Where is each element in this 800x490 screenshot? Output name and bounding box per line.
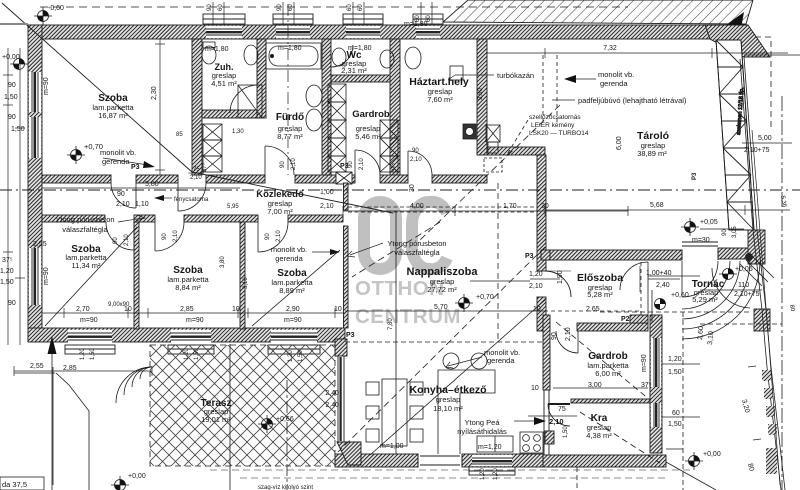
svg-text:16,87 m²: 16,87 m² <box>98 111 128 120</box>
svg-text:1,50: 1,50 <box>668 421 682 428</box>
svg-text:10: 10 <box>124 306 132 313</box>
svg-text:2,10: 2,10 <box>276 230 282 242</box>
svg-text:m=90: m=90 <box>186 317 204 324</box>
svg-text:2,40: 2,40 <box>325 390 339 397</box>
svg-text:+0,05: +0,05 <box>700 219 718 226</box>
svg-text:2,31 m²: 2,31 m² <box>341 66 367 75</box>
svg-text:m=90: m=90 <box>43 77 50 95</box>
svg-text:m=30: m=30 <box>692 237 710 244</box>
svg-text:6,00: 6,00 <box>616 136 623 150</box>
svg-text:+0,00: +0,00 <box>128 473 146 480</box>
svg-text:Fürdő: Fürdő <box>276 112 304 123</box>
svg-text:1,90: 1,90 <box>557 270 564 284</box>
svg-text:18,10 m²: 18,10 m² <box>433 404 463 413</box>
svg-text:2,10: 2,10 <box>124 234 130 246</box>
svg-text:+0,05: +0,05 <box>735 266 753 273</box>
svg-text:válaszfaltégla: válaszfaltégla <box>394 248 440 257</box>
svg-text:2,40: 2,40 <box>656 282 670 289</box>
svg-text:1,20: 1,20 <box>529 271 543 278</box>
svg-text:37⁵: 37⁵ <box>201 162 208 172</box>
svg-text:60: 60 <box>358 4 364 11</box>
svg-text:1,50: 1,50 <box>298 350 304 362</box>
svg-text:110: 110 <box>738 282 749 289</box>
svg-text:1,00: 1,00 <box>320 189 334 196</box>
svg-text:1,20: 1,20 <box>288 350 294 362</box>
svg-text:2,60: 2,60 <box>697 326 705 340</box>
svg-text:11,34 m²: 11,34 m² <box>71 261 101 270</box>
svg-text:5,70: 5,70 <box>434 304 448 311</box>
svg-text:1,20: 1,20 <box>80 348 86 360</box>
svg-text:90: 90 <box>113 237 119 244</box>
svg-text:5,00: 5,00 <box>758 135 772 142</box>
svg-text:+0,60: +0,60 <box>671 292 689 299</box>
svg-text:60: 60 <box>218 4 224 11</box>
svg-text:90: 90 <box>280 161 286 168</box>
svg-text:fénycsatorna: fénycsatorna <box>174 197 209 203</box>
svg-text:P3: P3 <box>692 172 698 180</box>
svg-text:2,70: 2,70 <box>76 306 90 313</box>
svg-text:90: 90 <box>277 4 283 11</box>
svg-text:1,20: 1,20 <box>0 268 14 275</box>
svg-text:90: 90 <box>722 229 728 236</box>
svg-text:90: 90 <box>8 300 16 307</box>
svg-text:+0,70: +0,70 <box>476 294 494 301</box>
svg-text:30: 30 <box>409 184 416 192</box>
svg-text:+0,00: +0,00 <box>703 451 721 458</box>
svg-text:60: 60 <box>672 410 680 417</box>
svg-text:5,29 m²: 5,29 m² <box>692 295 718 304</box>
svg-text:2,10: 2,10 <box>410 157 422 163</box>
svg-text:2,10+75: 2,10+75 <box>744 147 770 154</box>
svg-text:2,10: 2,10 <box>291 158 297 170</box>
svg-text:1,50: 1,50 <box>194 348 200 360</box>
svg-text:m=90: m=90 <box>641 354 648 372</box>
svg-text:m=90: m=90 <box>80 317 98 324</box>
svg-text:5,95: 5,95 <box>227 204 239 210</box>
svg-text:19,01 m²: 19,01 m² <box>201 415 231 424</box>
svg-text:1,70: 1,70 <box>503 203 517 210</box>
svg-text:2,10: 2,10 <box>549 417 564 426</box>
svg-text:2,10: 2,10 <box>116 201 130 208</box>
svg-text:8,84 m²: 8,84 m² <box>175 283 201 292</box>
svg-text:-0,60: -0,60 <box>48 5 64 12</box>
svg-text:Gardrob: Gardrob <box>352 109 390 120</box>
svg-text:10: 10 <box>232 306 240 313</box>
svg-text:P3: P3 <box>525 253 534 260</box>
svg-text:m=1,80: m=1,80 <box>278 45 302 52</box>
svg-text:1,30: 1,30 <box>232 129 244 135</box>
svg-text:10: 10 <box>533 306 541 313</box>
svg-text:5,28 m²: 5,28 m² <box>587 290 613 299</box>
svg-text:7,00 m²: 7,00 m² <box>267 207 293 216</box>
svg-text:monolit vb.: monolit vb. <box>271 245 307 254</box>
svg-text:1,50: 1,50 <box>11 126 25 133</box>
svg-text:3,10: 3,10 <box>243 277 249 289</box>
svg-text:padfeljúbúvó (lehajtható létrá: padfeljúbúvó (lehajtható létrával) <box>578 96 687 105</box>
svg-text:2,65: 2,65 <box>586 306 600 313</box>
svg-text:P3: P3 <box>346 332 355 339</box>
svg-text:nyílásáthidalás: nyílásáthidalás <box>457 427 507 436</box>
svg-text:m=1,20: m=1,20 <box>478 444 502 451</box>
svg-text:m=90: m=90 <box>43 267 50 285</box>
svg-text:2,10: 2,10 <box>320 203 334 210</box>
svg-text:+0,66: +0,66 <box>276 416 294 423</box>
svg-text:90: 90 <box>117 191 125 198</box>
svg-text:90: 90 <box>8 114 16 121</box>
svg-text:2,10: 2,10 <box>173 230 179 242</box>
svg-text:7,32: 7,32 <box>603 45 617 52</box>
svg-text:2,85: 2,85 <box>63 365 77 372</box>
svg-text:10: 10 <box>334 306 342 313</box>
svg-text:szag-víz kifolyó szint: szag-víz kifolyó szint <box>258 485 313 490</box>
svg-text:27,72 m²: 27,72 m² <box>427 285 457 294</box>
svg-text:monolit vb.: monolit vb. <box>598 70 634 79</box>
svg-text:válaszfaltégla: válaszfaltégla <box>62 225 108 234</box>
svg-text:4,51 m²: 4,51 m² <box>211 79 237 88</box>
svg-text:gerenda: gerenda <box>600 79 628 88</box>
svg-text:4,00: 4,00 <box>410 203 424 210</box>
svg-text:2,10: 2,10 <box>359 158 365 170</box>
svg-text:1,20: 1,20 <box>493 468 499 480</box>
svg-text:1,00+40: 1,00+40 <box>646 270 672 277</box>
svg-text:10: 10 <box>531 385 539 392</box>
svg-text:m=1,00: m=1,00 <box>380 443 404 450</box>
svg-text:3,05: 3,05 <box>732 226 738 238</box>
svg-text:2,10: 2,10 <box>565 327 572 341</box>
svg-text:75: 75 <box>193 167 200 173</box>
svg-text:37⁵: 37⁵ <box>391 162 398 172</box>
svg-text:1,50: 1,50 <box>0 279 14 286</box>
svg-text:60: 60 <box>347 4 353 11</box>
svg-text:90: 90 <box>207 4 213 11</box>
svg-text:85: 85 <box>176 132 183 138</box>
svg-text:5,46 m²: 5,46 m² <box>355 132 381 141</box>
svg-text:2,10+75: 2,10+75 <box>734 291 760 298</box>
svg-text:m=1,80: m=1,80 <box>205 46 229 53</box>
svg-text:2,40: 2,40 <box>325 402 339 409</box>
svg-text:m=90: m=90 <box>284 317 302 324</box>
svg-text:90: 90 <box>8 82 16 89</box>
svg-text:LEIER kémény: LEIER kémény <box>531 122 575 129</box>
svg-text:38,89 m²: 38,89 m² <box>637 149 667 158</box>
svg-text:gerenda: gerenda <box>275 254 303 263</box>
svg-text:1,20: 1,20 <box>668 356 682 363</box>
svg-text:1,50: 1,50 <box>4 94 18 101</box>
svg-text:5,80: 5,80 <box>145 181 159 188</box>
svg-text:2,10: 2,10 <box>529 283 543 290</box>
svg-text:1,50: 1,50 <box>90 348 96 360</box>
svg-text:Ytong pórusbeton: Ytong pórusbeton <box>55 215 114 224</box>
svg-text:2,55: 2,55 <box>30 363 44 370</box>
svg-text:3,00: 3,00 <box>588 382 602 389</box>
svg-text:+0,70: +0,70 <box>84 142 103 151</box>
svg-text:gerenda: gerenda <box>487 356 515 365</box>
svg-text:1,10: 1,10 <box>135 201 149 208</box>
svg-text:7,80: 7,80 <box>388 318 394 330</box>
svg-text:60: 60 <box>288 4 294 11</box>
svg-text:szellőzőcsatornás: szellőzőcsatornás <box>529 114 581 121</box>
svg-text:90: 90 <box>162 233 168 240</box>
svg-text:8,77 m²: 8,77 m² <box>277 132 303 141</box>
svg-text:P3: P3 <box>131 164 140 171</box>
svg-text:monolit vb.: monolit vb. <box>100 148 136 157</box>
svg-text:6,00 m²: 6,00 m² <box>595 369 621 378</box>
svg-text:da 37,5: da 37,5 <box>2 480 27 489</box>
svg-text:m=1,80: m=1,80 <box>348 45 372 52</box>
svg-text:gerenda: gerenda <box>102 157 130 166</box>
svg-text:75: 75 <box>558 406 566 413</box>
svg-text:1,20: 1,20 <box>480 468 486 480</box>
svg-text:2,90: 2,90 <box>286 306 300 313</box>
svg-text:2,85: 2,85 <box>180 306 194 313</box>
svg-text:3,80: 3,80 <box>220 256 226 268</box>
svg-text:37⁵: 37⁵ <box>2 257 13 264</box>
svg-text:3,80: 3,80 <box>478 88 484 100</box>
svg-text:Ytong pórusbeton: Ytong pórusbeton <box>387 239 446 248</box>
svg-text:7,60 m²: 7,60 m² <box>427 95 453 104</box>
svg-text:Ytong Peá: Ytong Peá <box>464 418 500 427</box>
svg-text:90: 90 <box>265 233 271 240</box>
svg-text:4,38 m²: 4,38 m² <box>586 431 612 440</box>
svg-text:turbókazán: turbókazán <box>497 71 534 80</box>
svg-text:90: 90 <box>348 161 354 168</box>
svg-text:m=1,80: m=1,80 <box>404 21 428 28</box>
svg-text:5,68: 5,68 <box>650 202 664 209</box>
svg-text:2,10: 2,10 <box>190 175 202 181</box>
svg-text:1,50: 1,50 <box>563 426 569 438</box>
svg-text:LSK20 — TURBO14: LSK20 — TURBO14 <box>529 130 589 137</box>
svg-text:1,50: 1,50 <box>668 369 682 376</box>
svg-text:greslap: greslap <box>436 395 461 404</box>
svg-text:90: 90 <box>412 148 419 154</box>
svg-text:P2: P2 <box>621 316 630 323</box>
svg-text:+0,00: +0,00 <box>2 54 20 61</box>
svg-text:30: 30 <box>541 203 549 210</box>
svg-text:2,55: 2,55 <box>33 241 47 248</box>
svg-text:3,10: 3,10 <box>707 331 715 345</box>
svg-text:37⁵: 37⁵ <box>641 382 652 389</box>
svg-text:1,20: 1,20 <box>184 348 190 360</box>
svg-text:90: 90 <box>551 332 558 340</box>
svg-text:2,30: 2,30 <box>151 86 158 100</box>
svg-text:8,89 m²: 8,89 m² <box>279 286 305 295</box>
